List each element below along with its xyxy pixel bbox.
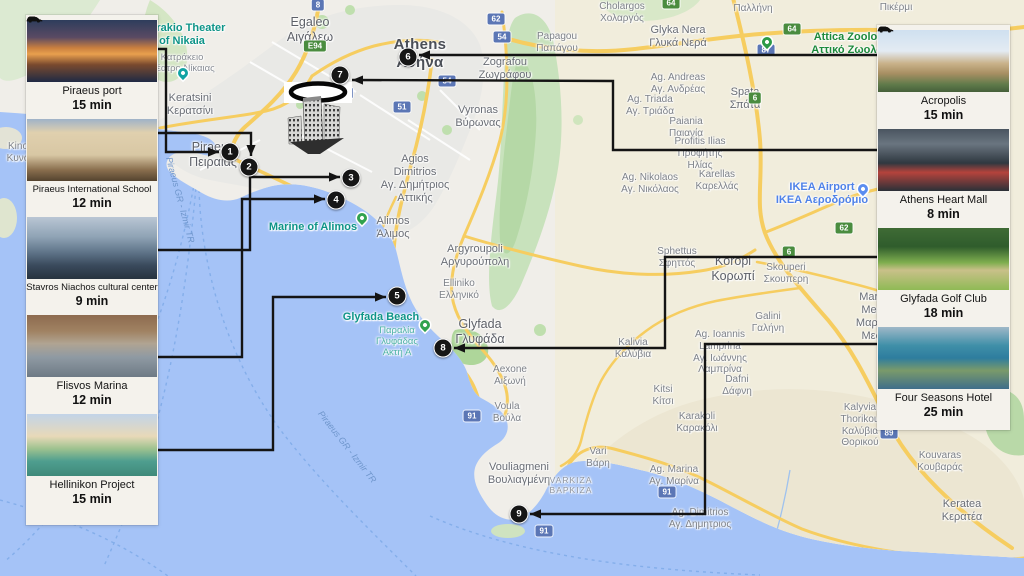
left-poi-panel: Piraeus port15 minPiraeus International … (26, 15, 158, 525)
poi-title: Acropolis (877, 95, 1010, 107)
route-marker-1: 1 (221, 143, 240, 162)
poi-drive-time: 18 min (924, 306, 964, 320)
poi-drive-time-row: 8 min (877, 207, 1010, 221)
poi-card: Piraeus port15 min (26, 20, 158, 112)
connector-arrowhead (530, 509, 541, 518)
route-marker-6: 6 (399, 48, 418, 67)
poi-drive-time: 9 min (76, 294, 109, 308)
car-icon (877, 25, 894, 33)
connector-arrowhead (375, 292, 386, 301)
poi-photo-flisvos (27, 315, 157, 377)
poi-drive-time-row: 12 min (26, 196, 158, 210)
connector-arrowhead (419, 50, 430, 59)
poi-drive-time-row: 9 min (26, 294, 158, 308)
poi-drive-time-row: 12 min (26, 393, 158, 407)
poi-photo-port (27, 20, 157, 82)
route-marker-7: 7 (331, 66, 350, 85)
poi-photo-fourseasons (878, 327, 1009, 389)
poi-title: Stavros Niachos cultural center (26, 282, 158, 293)
poi-drive-time-row: 18 min (877, 306, 1010, 320)
poi-photo-hellinikon (27, 414, 157, 476)
connector-arrowhead (314, 194, 325, 203)
poi-photo-golf (878, 228, 1009, 290)
poi-drive-time-row: 15 min (26, 98, 158, 112)
poi-drive-time: 15 min (72, 492, 112, 506)
poi-photo-acropolis (878, 30, 1009, 92)
route-marker-2: 2 (240, 158, 259, 177)
tower-building-image (288, 96, 344, 154)
connector-arrowhead (246, 145, 255, 156)
route-marker-9: 9 (510, 505, 529, 524)
route-marker-8: 8 (434, 339, 453, 358)
car-icon (26, 15, 43, 23)
route-marker-3: 3 (342, 169, 361, 188)
poi-drive-time-row: 15 min (26, 492, 158, 506)
poi-drive-time-row: 25 min (877, 405, 1010, 419)
poi-card: Flisvos Marina12 min (26, 315, 158, 407)
connector-arrowhead (208, 147, 219, 156)
poi-photo-stavros (27, 217, 157, 279)
project-location-highlight (280, 78, 358, 158)
route-marker-5: 5 (388, 287, 407, 306)
poi-title: Four Seasons Hotel (877, 392, 1010, 404)
connector-arrowhead (454, 343, 465, 352)
poi-card: Four Seasons Hotel25 min (877, 327, 1010, 419)
poi-title: Piraeus International School (26, 184, 158, 195)
poi-card: Piraeus International School12 min (26, 119, 158, 210)
poi-title: Athens Heart Mall (877, 194, 1010, 206)
poi-drive-time: 8 min (927, 207, 960, 221)
map-canvas: EgaleoΑιγάλεωAthensΑθήναKeratsiniΚερατσί… (0, 0, 1024, 576)
poi-card: Acropolis15 min (877, 30, 1010, 122)
poi-card: Stavros Niachos cultural center9 min (26, 217, 158, 308)
poi-drive-time: 15 min (72, 98, 112, 112)
route-marker-4: 4 (327, 191, 346, 210)
poi-drive-time-row: 15 min (877, 108, 1010, 122)
poi-photo-mall (878, 129, 1009, 191)
poi-title: Glyfada Golf Club (877, 293, 1010, 305)
poi-card: Glyfada Golf Club18 min (877, 228, 1010, 320)
poi-drive-time: 15 min (924, 108, 964, 122)
poi-card: Athens Heart Mall8 min (877, 129, 1010, 221)
poi-photo-school (27, 119, 157, 181)
poi-drive-time: 12 min (72, 196, 112, 210)
poi-card: Hellinikon Project15 min (26, 414, 158, 506)
right-poi-panel: Acropolis15 minAthens Heart Mall8 minGly… (877, 25, 1010, 430)
poi-title: Hellinikon Project (26, 479, 158, 491)
poi-title: Piraeus port (26, 85, 158, 97)
poi-drive-time: 12 min (72, 393, 112, 407)
poi-drive-time: 25 min (924, 405, 964, 419)
poi-title: Flisvos Marina (26, 380, 158, 392)
connector-arrowhead (329, 172, 340, 181)
